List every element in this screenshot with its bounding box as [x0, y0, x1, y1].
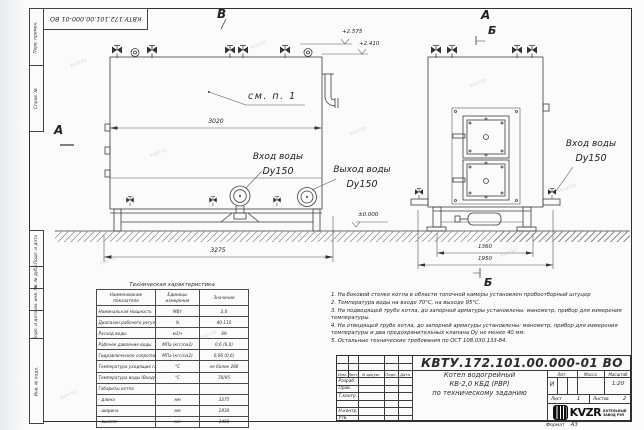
sheet-value: 1	[577, 396, 580, 402]
inlet-left-label: Вход воды	[251, 153, 305, 162]
top-port-circle	[131, 49, 139, 57]
table-cell: 70/95	[200, 372, 249, 383]
row-razrab: Разраб.	[339, 379, 356, 384]
section-label-a-left: А	[54, 124, 63, 137]
elevation-2575	[300, 39, 352, 44]
table-cell: - ширина	[97, 405, 156, 416]
margin-stamp-perv-primen: Перв. примен.	[29, 8, 44, 67]
sheets-label: Листов	[593, 396, 609, 401]
margin-stamp-podp-data-1: Подп. и дата	[29, 230, 44, 268]
col-izm: Изм.	[337, 372, 348, 377]
title-block: КВТУ.172.101.00.000-01 ВО Изм. Лист N до…	[336, 355, 631, 421]
mass-label: Масса	[577, 372, 604, 377]
format-label: Формат	[546, 423, 565, 428]
table-cell: МВт	[156, 306, 200, 317]
kvzr-logo-sub1: КОТЕЛЬНЫЙ	[603, 409, 626, 413]
drain-pipe	[322, 74, 338, 108]
product-name: Котел водогрейный КВ-2,0 КБД (РВР) по те…	[412, 371, 547, 398]
tech-characteristics: Техническая характеристика Наименование …	[96, 282, 248, 428]
inlet-left-dn: Dy150	[258, 167, 298, 177]
product-line2: КВ-2,0 КБД (РВР)	[412, 380, 547, 389]
inlet-right-leader	[556, 167, 573, 191]
col-list: Лист	[348, 372, 358, 377]
tech-table: Наименование показателя Единицы измерени…	[96, 289, 249, 428]
table-cell	[200, 383, 249, 394]
doc-number: КВТУ.172.101.00.000-01 ВО	[412, 356, 632, 370]
top-valves-front	[431, 46, 537, 59]
top-doc-number: КВТУ.172.101.00.000-01 ВО	[50, 15, 141, 23]
table-cell: °С	[156, 361, 200, 372]
table-cell: 2,0	[200, 306, 249, 317]
kvzr-logo-sub2: ЗАВОД РЭП	[603, 413, 626, 417]
table-cell: - длина	[97, 394, 156, 405]
table-cell: Диапазон рабочего регулирования	[97, 317, 156, 328]
table-cell: 1830	[200, 405, 249, 416]
bottom-valves-side	[126, 197, 281, 206]
note-1: 1. На боковой стенке котла в области топ…	[331, 292, 634, 299]
note-2: 2. Температура воды на входе 70°С, на вы…	[331, 300, 634, 307]
tech-header: Значение	[200, 290, 249, 306]
table-cell: %	[156, 317, 200, 328]
table-cell: 3275	[200, 394, 249, 405]
format-note: Формат А3	[546, 422, 636, 428]
boiler-side-view	[55, 19, 630, 262]
outlet-left-label: Выход воды	[330, 166, 394, 175]
margin-stamp-sprav-no: Справ. №	[29, 65, 44, 132]
table-cell: м3/ч	[156, 328, 200, 339]
scale-label: Масштаб	[604, 372, 632, 377]
product-line1: Котел водогрейный	[412, 371, 547, 380]
table-cell: 40-110	[200, 317, 249, 328]
table-cell: Температура уходящих газов	[97, 361, 156, 372]
table-cell: не более 280	[200, 361, 249, 372]
see-note-ref: см. п. 1	[248, 92, 297, 102]
section-label-b-bottom: Б	[484, 277, 492, 289]
dim-1360: 1360	[462, 245, 508, 251]
inlet-right-label: Вход воды	[562, 140, 620, 149]
product-line3: по техническому заданию	[412, 389, 547, 398]
table-cell: - высота	[97, 416, 156, 427]
base-frame-side	[110, 206, 322, 231]
top-doc-number-stamp: КВТУ.172.101.00.000-01 ВО	[43, 8, 148, 30]
table-cell	[156, 383, 200, 394]
water-inlet-flange	[230, 186, 250, 206]
table-cell: мм	[156, 394, 200, 405]
kvzr-logo-icon	[553, 405, 568, 420]
ground-hatching	[55, 231, 630, 242]
base-frame-front	[427, 207, 536, 231]
scale-value: 1:20	[604, 381, 632, 387]
sheet-label: Лист	[551, 396, 562, 401]
dim-3275: 3275	[192, 248, 244, 254]
dim-3020-line	[110, 126, 322, 130]
top-port-circle	[304, 49, 312, 57]
table-cell: мм	[156, 405, 200, 416]
table-cell: Номинальная мощность	[97, 306, 156, 317]
dim-1950: 1950	[458, 257, 512, 263]
table-cell: МПа (кгс/см2)	[156, 339, 200, 350]
table-cell: Гидравлическое сопротивление котла	[97, 350, 156, 361]
col-data: Дата	[398, 372, 412, 377]
table-cell: Расход воды	[97, 328, 156, 339]
tech-table-title: Техническая характеристика	[96, 282, 248, 288]
elevation-ground: ±0.000	[358, 213, 378, 219]
view-label-v: В	[217, 8, 226, 21]
inlet-right-dn: Dy150	[568, 154, 614, 164]
note-5: 5. Остальные технические требования по О…	[331, 338, 634, 345]
water-outlet-flange	[298, 188, 317, 207]
furnace-doors	[452, 108, 520, 204]
elevation-top-1: +2.575	[342, 30, 362, 36]
margin-stamp-podp-data-2: Подп. и дата	[29, 310, 44, 340]
outlet-left-dn: Dy150	[338, 180, 386, 190]
technical-notes: 1. На боковой стенке котла в области топ…	[331, 292, 634, 346]
table-cell: Габариты котла	[97, 383, 156, 394]
table-cell: 0,06 (0,6)	[200, 350, 249, 361]
table-cell: 69	[200, 328, 249, 339]
row-utv: Утв.	[339, 416, 348, 421]
row-prov: Пров.	[339, 386, 352, 391]
lit-value: И	[547, 381, 557, 388]
lit-label: Лит.	[547, 372, 577, 377]
elevation-2410	[322, 49, 368, 54]
table-cell: мм	[156, 416, 200, 427]
kvzr-logo-subtitle: КОТЕЛЬНЫЙ ЗАВОД РЭП	[603, 409, 626, 417]
view-label-a-right: А	[481, 9, 490, 22]
col-podp: Подп.	[384, 372, 398, 377]
section-label-b-top: Б	[488, 25, 496, 37]
row-tkontr: Т.контр.	[339, 394, 358, 399]
kvzr-logo-text: KVZR	[570, 406, 601, 419]
table-cell: МПа (кгс/см2)	[156, 350, 200, 361]
note-3: 3. На подводящей трубе котла, до запорно…	[331, 308, 634, 323]
col-ndocum: N докум.	[358, 372, 384, 377]
table-cell: 0,6 (6,0)	[200, 339, 249, 350]
margin-stamp-inv-podl: Инв. № подл.	[29, 338, 44, 424]
elevation-top-2: +2.410	[359, 42, 379, 48]
drawing-sheet: Перв. примен. Справ. № Подп. и дата Инв.…	[0, 0, 644, 430]
note-4: 4. На отводящей трубе котла, до запорной…	[331, 323, 634, 338]
table-cell: Рабочее давление воды	[97, 339, 156, 350]
table-cell: °С	[156, 372, 200, 383]
elevation-0000	[352, 222, 388, 227]
margin-stamp-vzam-inv: Взам. инв. №	[29, 288, 44, 312]
table-cell: Температура воды (Вход/Выход)	[97, 372, 156, 383]
sheets-value: 2	[623, 396, 626, 402]
tech-header: Наименование показателя	[97, 290, 156, 306]
table-cell: 2460	[200, 416, 249, 427]
tech-header: Единицы измерения	[156, 290, 200, 306]
outlet-leader	[312, 179, 336, 190]
kvzr-logo: KVZR КОТЕЛЬНЫЙ ЗАВОД РЭП	[547, 403, 632, 422]
format-value: А3	[571, 422, 578, 428]
row-nkontr: Н.контр.	[339, 409, 358, 414]
dim-3020: 3020	[190, 119, 242, 125]
